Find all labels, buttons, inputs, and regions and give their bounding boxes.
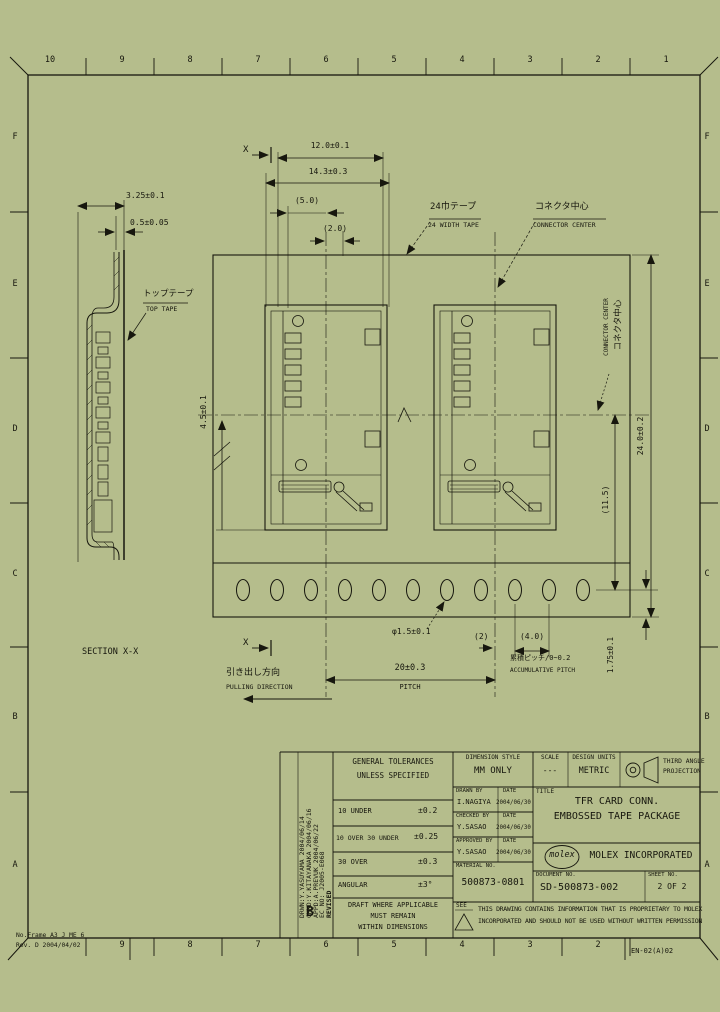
approved-by-value: Y.SASAO [457, 849, 487, 856]
section-label: SECTION X-X [82, 648, 138, 657]
checked-by-value: Y.SASAO [457, 824, 487, 831]
dim-emboss-height: 3.25±0.1 [126, 192, 165, 200]
center-callout-side-jp: コネクタ中心 [615, 300, 624, 351]
zone-col-label: 8 [187, 56, 192, 65]
tape-callout-en: 24 WIDTH TAPE [428, 222, 479, 229]
tolerance-range: ANGULAR [338, 882, 368, 889]
zone-col-label: 3 [527, 56, 532, 65]
approved-by-label: APPROVED BY [456, 839, 492, 845]
projection-label: THIRD ANGLE [663, 759, 705, 766]
checked-date-label: DATE [503, 814, 516, 820]
note-triangle-icon [455, 914, 473, 930]
disclaimer: THIS DRAWING CONTAINS INFORMATION THAT I… [478, 906, 702, 913]
drawn-by-label: DRAWN BY [456, 789, 483, 795]
center-callout-side-en: CONNECTOR CENTER [604, 298, 610, 356]
sheet-no-value: 2 OF 2 [658, 883, 687, 891]
sprocket-holes [237, 580, 590, 601]
pitch-label: PITCH [399, 684, 420, 691]
zone-row-label: F [12, 133, 17, 142]
top-tape-callout-en: TOP TAPE [146, 306, 177, 313]
company-name: MOLEX INCORPORATED [590, 851, 693, 861]
zone-col-label: 6 [323, 56, 328, 65]
draft-note: MUST REMAIN [370, 913, 415, 920]
dim-tape-thickness: 0.5±0.05 [130, 219, 169, 227]
zone-ticks [10, 58, 718, 960]
zone-col-label: 7 [255, 941, 260, 950]
tolerance-value: ±0.3 [418, 858, 437, 866]
draft-note: WITHIN DIMENSIONS [358, 924, 428, 931]
drawing-sheet: 10 9 8 7 6 5 4 3 2 1 9 8 7 6 5 4 3 2 F E… [0, 0, 720, 1012]
section-mark: X [243, 639, 248, 648]
center-callout-en: CONNECTOR CENTER [533, 222, 596, 229]
tolerance-range: 10 OVER 30 UNDER [336, 835, 399, 842]
zone-row-label: E [704, 280, 709, 289]
dim-sprocket-hole: φ1.5±0.1 [392, 628, 431, 636]
pulling-direction-en: PULLING DIRECTION [226, 684, 293, 691]
sheet-no-label: SHEET NO. [648, 873, 678, 879]
projection-label: PROJECTION [663, 769, 701, 776]
connector-cross-section [94, 332, 112, 532]
tolerance-header: UNLESS SPECIFIED [357, 772, 429, 780]
top-tape-callout-jp: トップテープ [143, 290, 194, 299]
title-label: TITLE [536, 789, 554, 795]
frame-ref: EN-02(A)02 [631, 948, 673, 955]
drawing-title: EMBOSSED TAPE PACKAGE [554, 812, 680, 823]
revision-entry: REVISED [326, 758, 333, 918]
zone-row-label: C [704, 570, 709, 579]
dim-sprocket-pitch: (4.0) [520, 633, 544, 641]
zone-row-label: D [704, 425, 709, 434]
tape-callout-jp: 24巾テープ [430, 203, 476, 212]
zone-row-label: A [704, 861, 709, 870]
document-no-value: SD-500873-002 [540, 883, 618, 894]
zone-row-label: C [12, 570, 17, 579]
zone-col-label: 8 [187, 941, 192, 950]
zone-col-label: 10 [45, 56, 55, 65]
zone-row-label: B [12, 713, 17, 722]
tolerance-range: 10 UNDER [338, 808, 372, 815]
dim-5: (5.0) [295, 197, 319, 205]
drawn-date-value: 2004/06/30 [496, 800, 531, 806]
drawn-date-label: DATE [503, 789, 516, 795]
material-no-label: MATERIAL NO. [456, 864, 496, 870]
approved-date-value: 2004/06/30 [496, 850, 531, 856]
document-no-label: DOCUMENT NO. [536, 873, 576, 879]
draft-note: DRAFT WHERE APPLICABLE [348, 902, 438, 909]
cumulative-pitch-jp: 累積ピッチ/0~0.2 [510, 655, 570, 662]
section-mark: X [243, 146, 248, 155]
zone-col-label: 2 [595, 56, 600, 65]
dim-pocket-width: 12.0±0.1 [311, 142, 350, 150]
checked-date-value: 2004/06/30 [496, 825, 531, 831]
frame-corner-note: Rev. D 2004/04/02 [16, 943, 80, 950]
drawn-by-value: I.NAGIYA [457, 799, 491, 806]
zone-col-label: 4 [459, 56, 464, 65]
material-no-value: 500873-0801 [462, 878, 525, 888]
zone-col-label: 5 [391, 941, 396, 950]
dim-emboss-width: 14.3±0.3 [309, 168, 348, 176]
zone-col-label: 5 [391, 56, 396, 65]
center-callout-jp: コネクタ中心 [535, 203, 589, 212]
zone-col-label: 9 [119, 56, 124, 65]
tolerance-value: ±0.25 [414, 833, 438, 841]
revision-block: DRWN:Y.YASUYAMA 2004/06/14 CHKD:Y.KITAYA… [299, 758, 333, 918]
dim-pitch: 20±0.3 [395, 664, 426, 673]
zone-col-label: 7 [255, 56, 260, 65]
drawing-title: TFR CARD CONN. [575, 797, 659, 808]
zone-col-label: 4 [459, 941, 464, 950]
see-note: SEE [456, 903, 467, 909]
tolerance-value: ±0.2 [418, 807, 437, 815]
frame-border [8, 57, 718, 960]
scale-label: SCALE [541, 755, 559, 761]
dim-tape-width: 24.0±0.2 [637, 417, 645, 456]
tolerance-header: GENERAL TOLERANCES [352, 758, 433, 766]
dim-f: (11.5) [602, 486, 610, 515]
dim-2: (2.0) [323, 225, 347, 233]
zone-row-label: E [12, 280, 17, 289]
dimension-style-label: DIMENSION STYLE [466, 755, 520, 761]
scale-value: --- [543, 767, 557, 775]
plan-view-linework [198, 147, 659, 699]
cumulative-pitch-en: ACCUMULATIVE PITCH [510, 668, 575, 674]
zone-col-label: 3 [527, 941, 532, 950]
zone-row-label: B [704, 713, 709, 722]
disclaimer: INCORPORATED AND SHOULD NOT BE USED WITH… [478, 918, 702, 925]
checked-by-label: CHECKED BY [456, 814, 489, 820]
tolerance-value: ±3° [418, 881, 432, 889]
molex-logo-text: molex [549, 851, 575, 860]
tolerance-range: 30 OVER [338, 859, 368, 866]
pulling-direction-jp: 引き出し方向 [226, 669, 280, 678]
design-units-label: DESIGN UNITS [572, 755, 615, 761]
frame-corner-note: No.Frame A3 J ME 6 [16, 933, 84, 940]
zone-row-label: D [12, 425, 17, 434]
revision-letter: B [306, 906, 314, 920]
design-units-value: METRIC [579, 767, 610, 776]
dim-2b: (2) [474, 633, 488, 641]
zone-col-label: 6 [323, 941, 328, 950]
dim-edge: 1.75±0.1 [607, 637, 615, 673]
section-view-linework [78, 200, 188, 562]
zone-row-label: F [704, 133, 709, 142]
dim-left: 4.5±0.1 [200, 395, 208, 429]
approved-date-label: DATE [503, 839, 516, 845]
third-angle-projection-icon [626, 757, 658, 783]
zone-col-label: 1 [663, 56, 668, 65]
dimension-style-value: MM ONLY [474, 767, 512, 776]
zone-row-label: A [12, 861, 17, 870]
zone-col-label: 2 [595, 941, 600, 950]
zone-col-label: 9 [119, 941, 124, 950]
